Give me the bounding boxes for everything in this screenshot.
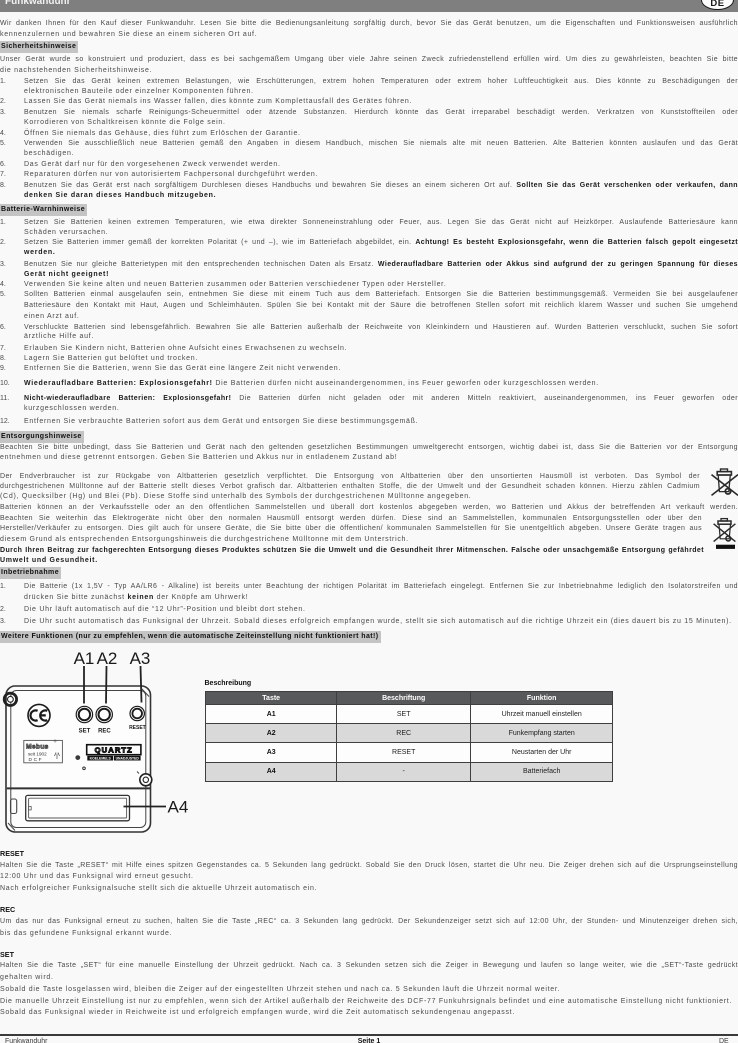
svg-text:DCF: DCF [29,757,44,763]
svg-text:A2: A2 [97,649,118,668]
svg-text:KOELEMELS: KOELEMELS [90,757,112,761]
svg-text:SET: SET [79,729,91,735]
svg-text:Mebus: Mebus [26,744,49,751]
svg-text:REC: REC [98,729,111,735]
svg-text:A4: A4 [168,798,189,817]
svg-text:UNADJUSTED: UNADJUSTED [116,757,140,761]
svg-text:A1: A1 [74,649,95,668]
svg-text:RESET: RESET [129,725,146,731]
svg-text:seit 1902: seit 1902 [28,752,47,757]
svg-text:QUARTZ: QUARTZ [95,746,133,755]
svg-text:®: ® [54,739,57,744]
svg-text:A3: A3 [130,649,151,668]
